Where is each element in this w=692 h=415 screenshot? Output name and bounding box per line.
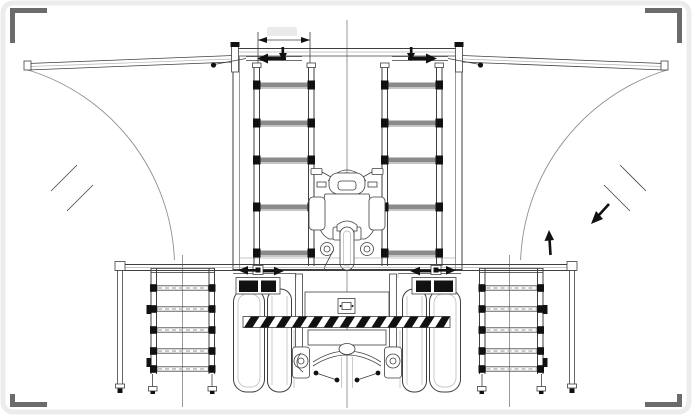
front-wheel [340,227,354,270]
rack-rung [260,121,308,126]
hinge-post-right [455,42,464,72]
deck-cap-left [115,262,125,271]
aux-light-right [361,243,374,256]
hinge-post-left [231,42,240,72]
rack-latch-tab [543,358,548,367]
rack-latch-tab [543,305,548,314]
screenshot-frame [0,0,692,415]
tail-lights-left [236,278,280,295]
faded-dimension-text [267,27,297,36]
mirror-right [372,169,383,175]
rack-rung [260,251,308,256]
rack-latch-tab [147,358,152,367]
saddlebag-left [309,197,325,230]
differential [339,344,355,355]
rack-rung [388,251,436,256]
tail-lights-right [412,278,456,295]
rack-rung [388,83,436,88]
strut-pivot-right [478,62,483,67]
panel-tip-cap-right [661,61,668,70]
tire-inner-right [403,289,427,392]
deck-cap-right [567,262,577,271]
rack-rung [260,83,308,88]
saddlebag-right [369,197,385,230]
panel-tip-cap-left [24,61,31,70]
wheels-left [234,289,292,392]
rack-rung [260,205,308,210]
wheels-right [403,289,461,392]
rack-rung [388,121,436,126]
front-cowl [329,173,365,194]
mirror-left [311,169,322,175]
license-plate-panel [305,292,389,320]
tire-inner-left [268,289,292,392]
technical-drawing [0,0,692,415]
strut-pivot-left [211,62,216,67]
rack-latch-tab [147,305,152,314]
rack-rung [388,205,436,210]
rack-rung [388,158,436,163]
hazard-stripe-bar [243,317,450,328]
rack-rung [260,158,308,163]
